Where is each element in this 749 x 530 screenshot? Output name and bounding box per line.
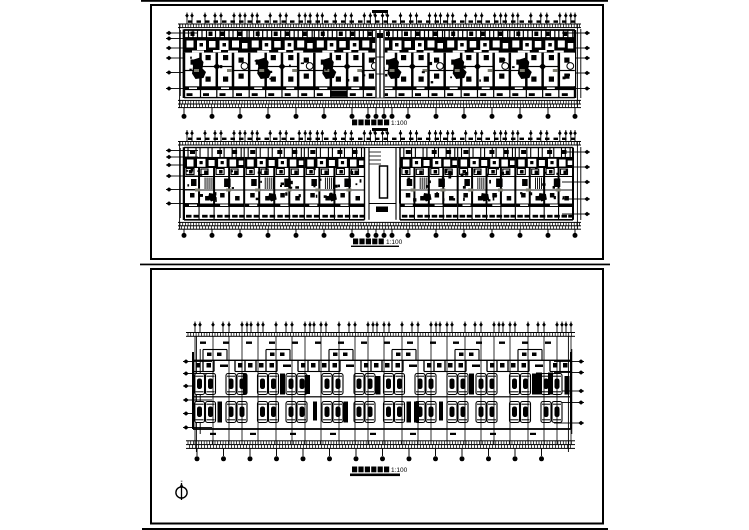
svg-text:1:100: 1:100 xyxy=(391,120,408,127)
svg-text:1:100: 1:100 xyxy=(391,467,408,474)
svg-text:1:100: 1:100 xyxy=(386,239,403,246)
